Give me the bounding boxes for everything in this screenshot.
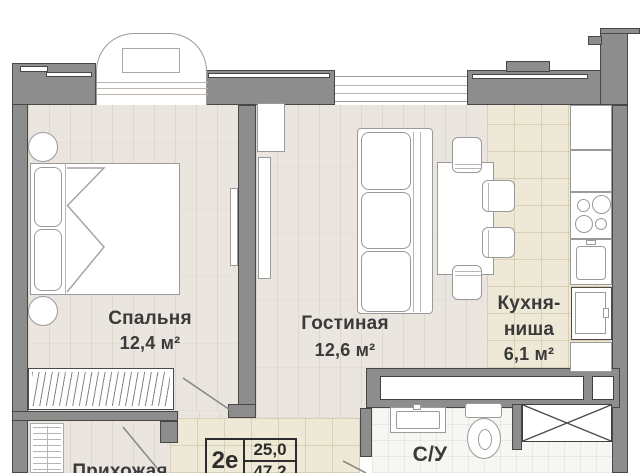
parapet-step-right	[506, 61, 550, 72]
area-stamp: 2е 25,0 47,2	[205, 438, 297, 473]
living-window	[335, 76, 467, 102]
washbasin-bowl	[396, 411, 440, 429]
kitchen-label-line2: ниша	[479, 320, 579, 339]
dining-chair-right	[482, 227, 515, 258]
tv-panel-bedroom	[230, 188, 238, 266]
bedside-table-bottom	[28, 296, 58, 326]
wardrobe-hatch	[32, 372, 170, 406]
sofa-cushion	[361, 192, 411, 249]
parapet-groove-mid	[208, 73, 330, 78]
bedroom-label: Спальня	[75, 309, 225, 328]
balcony-window-line	[97, 82, 208, 83]
kitchen-counter	[570, 105, 612, 150]
burner	[595, 218, 607, 230]
hallway-label: Прихожая	[55, 462, 185, 473]
parapet-groove-right	[472, 74, 588, 79]
living-area: 12,6 м²	[270, 341, 420, 359]
storage-niche-long	[380, 376, 584, 400]
washbasin	[390, 407, 446, 433]
balcony-window-line	[97, 88, 208, 89]
stamp-total-area: 47,2	[245, 462, 295, 473]
chair-line	[488, 183, 489, 211]
sofa	[357, 128, 433, 314]
wall-partition-bedroom-living	[238, 105, 256, 405]
burner	[577, 199, 590, 212]
burner	[575, 215, 593, 233]
dining-chair-bottom	[452, 265, 482, 300]
bathroom-label: С/У	[400, 444, 460, 465]
wall-partition-jamb	[228, 404, 256, 418]
wall-parapet-step	[588, 36, 602, 45]
wall-parapet-cap	[600, 28, 640, 34]
stove	[570, 192, 612, 239]
bedroom-area: 12,4 м²	[75, 334, 225, 352]
washbasin-faucet	[413, 404, 421, 410]
living-label: Гостиная	[270, 314, 420, 333]
bedside-table-top	[28, 132, 58, 162]
wall-right	[612, 105, 628, 473]
chair-line	[455, 168, 481, 169]
toilet-bowl-inner	[478, 429, 492, 450]
sofa-cushion	[361, 251, 411, 312]
kitchen-sink-cell	[570, 239, 612, 285]
sofa-backrest-line	[413, 132, 414, 312]
window-glass-line	[335, 85, 467, 86]
wardrobe-bedroom	[28, 368, 174, 410]
kitchen-sink-bowl	[576, 246, 606, 280]
kitchen-label-line1: Кухня-	[479, 294, 579, 313]
kitchen-counter	[570, 150, 612, 192]
storage-box-crossed	[522, 404, 612, 442]
wall-hall-bathroom	[360, 408, 372, 457]
chair-line	[455, 275, 481, 276]
wall-bathroom-divider	[512, 404, 522, 450]
wall-bedroom-bottom	[12, 411, 178, 421]
floor-plan: Спальня 12,4 м² Гостиная 12,6 м² Кухня- …	[0, 0, 640, 473]
sofa-cushion	[361, 132, 411, 190]
chair-line	[455, 164, 481, 165]
bed-pillow	[34, 229, 62, 291]
kitchen-faucet	[586, 240, 596, 245]
bed-pillow	[34, 167, 62, 227]
toilet-bowl	[467, 418, 501, 459]
chair-line	[455, 271, 481, 272]
fridge-handle	[603, 308, 609, 318]
chair-line	[488, 230, 489, 257]
dining-chair-top	[452, 137, 482, 173]
bed-divider-line	[65, 164, 66, 294]
stamp-living-area: 25,0	[245, 440, 295, 462]
storage-niche-small	[592, 376, 614, 400]
balcony-box	[122, 48, 180, 73]
living-passage-floor	[256, 368, 366, 418]
sofa-backrest-line	[420, 132, 421, 312]
balcony-bay	[96, 33, 207, 105]
kitchen-area: 6,1 м²	[479, 345, 579, 363]
burner	[592, 195, 611, 214]
parapet-groove-left-a	[20, 66, 48, 72]
stamp-unit-type: 2е	[207, 440, 243, 473]
cabinet-living	[257, 103, 285, 152]
window-glass-line	[335, 93, 467, 94]
wall-top-right-column	[600, 33, 628, 105]
toilet-tank	[465, 403, 502, 418]
tv-panel-living	[258, 157, 271, 279]
parapet-groove-left-b	[46, 72, 92, 77]
wall-bedroom-door-jamb	[160, 421, 178, 443]
dining-table	[437, 162, 494, 275]
fridge-door	[575, 292, 606, 334]
hallway-closet-spine	[47, 426, 48, 472]
balcony-window-line	[97, 94, 208, 95]
dining-chair-right	[482, 180, 515, 212]
